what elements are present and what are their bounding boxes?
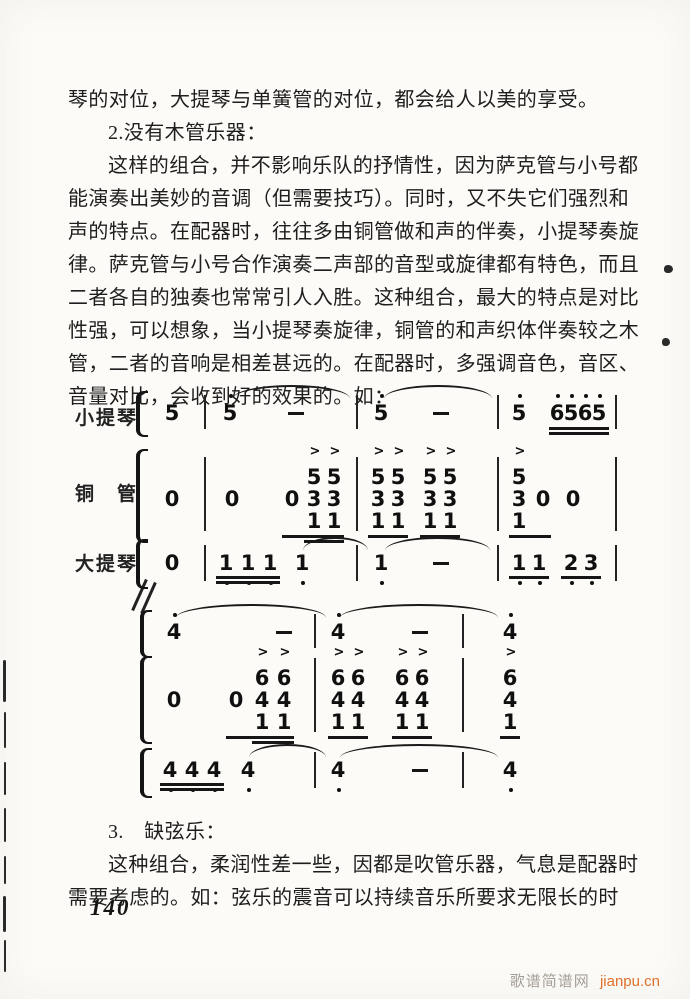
slur bbox=[176, 604, 326, 619]
note-digit: 0 bbox=[164, 487, 180, 511]
slur bbox=[340, 744, 498, 759]
beam-underline bbox=[549, 427, 609, 430]
note-digit: 1 bbox=[350, 710, 366, 734]
note-digit: 5 bbox=[370, 465, 386, 489]
note-digit: 4 bbox=[166, 620, 182, 644]
watermark-url: jianpu.cn bbox=[600, 973, 660, 990]
text-line: 性强，可以想象，当小提琴奏旋律，铜管的和声织体伴奏较之木 bbox=[68, 315, 653, 348]
note-digit: 0 bbox=[284, 487, 300, 511]
note-digit: 1 bbox=[502, 710, 518, 734]
note-digit: 4 bbox=[206, 758, 222, 782]
note-digit: 6 bbox=[330, 666, 346, 690]
beam-underline bbox=[500, 736, 520, 739]
note-digit: 5 bbox=[442, 465, 458, 489]
barline bbox=[204, 457, 206, 531]
beam-underline bbox=[216, 576, 280, 579]
note-digit: 1 bbox=[373, 551, 389, 575]
note-digit: 3 bbox=[583, 551, 599, 575]
score-system: 44400641>641>641>641>641>641>641>444444 bbox=[0, 598, 690, 813]
dash-note bbox=[412, 769, 428, 772]
octave-dot-below bbox=[590, 581, 594, 585]
note-digit: 4 bbox=[502, 758, 518, 782]
slur bbox=[340, 604, 498, 619]
barline bbox=[497, 545, 499, 581]
note-digit: 4 bbox=[330, 758, 346, 782]
dash-note bbox=[276, 631, 292, 634]
note-digit: 1 bbox=[442, 509, 458, 533]
note-digit: 4 bbox=[240, 758, 256, 782]
accent-mark: > bbox=[332, 646, 346, 660]
text-line: 琴的对位，大提琴与单簧管的对位，都会给人以美的享受。 bbox=[68, 84, 653, 117]
barline bbox=[615, 457, 617, 531]
binding-mark bbox=[4, 762, 6, 795]
octave-dot-above bbox=[173, 613, 177, 617]
octave-dot-below bbox=[247, 788, 251, 792]
text-line: 二者各自的独奏也常常引人入胜。这种组合，最大的特点是对比 bbox=[68, 282, 653, 315]
note-digit: 6 bbox=[254, 666, 270, 690]
text-line: 2.没有木管乐器： bbox=[68, 117, 653, 150]
note-digit: 4 bbox=[350, 688, 366, 712]
ink-speck bbox=[664, 265, 673, 273]
beam-underline bbox=[160, 783, 224, 786]
octave-dot-below bbox=[538, 581, 542, 585]
dash-note bbox=[433, 562, 449, 565]
text-line: 音量对比，会收到好的效果的。如： bbox=[68, 381, 653, 414]
stave-bracket bbox=[140, 610, 152, 658]
instrument-label: 大提琴 bbox=[75, 549, 138, 576]
note-digit: 1 bbox=[240, 551, 256, 575]
text-line: 这样的组合，并不影响乐队的抒情性，因为萨克管与小号都 bbox=[68, 150, 653, 183]
octave-dot-below bbox=[509, 788, 513, 792]
note-digit: 1 bbox=[218, 551, 234, 575]
note-digit: 3 bbox=[511, 487, 527, 511]
barline bbox=[356, 457, 358, 531]
octave-dot-below bbox=[247, 581, 251, 585]
accent-mark: > bbox=[416, 646, 430, 660]
stave-bracket bbox=[136, 449, 148, 543]
note-digit: 5 bbox=[511, 465, 527, 489]
binding-mark bbox=[4, 856, 6, 884]
beam-underline bbox=[304, 540, 344, 543]
note-digit: 0 bbox=[224, 487, 240, 511]
octave-dot-above bbox=[337, 613, 341, 617]
barline bbox=[204, 545, 206, 581]
accent-mark: > bbox=[396, 646, 410, 660]
text-line: 管，二者的音响是相差甚远的。在配器时，多强调音色，音区、 bbox=[68, 348, 653, 381]
note-digit: 4 bbox=[502, 620, 518, 644]
octave-dot-below bbox=[380, 581, 384, 585]
octave-dot-below bbox=[518, 581, 522, 585]
note-digit: 4 bbox=[276, 688, 292, 712]
binding-mark bbox=[4, 808, 6, 842]
watermark-site-name: 歌谱简谱网 bbox=[510, 973, 590, 990]
octave-dot-above bbox=[509, 613, 513, 617]
note-digit: 6 bbox=[276, 666, 292, 690]
note-digit: 1 bbox=[422, 509, 438, 533]
beam-underline bbox=[282, 535, 344, 538]
accent-mark: > bbox=[513, 445, 527, 459]
note-digit: 3 bbox=[390, 487, 406, 511]
note-digit: 3 bbox=[442, 487, 458, 511]
text-line: 3. 缺弦乐： bbox=[68, 816, 653, 849]
octave-dot-below bbox=[213, 788, 217, 792]
note-digit: 0 bbox=[166, 688, 182, 712]
note-digit: 5 bbox=[326, 465, 342, 489]
beam-underline bbox=[368, 535, 408, 538]
note-digit: 1 bbox=[414, 710, 430, 734]
dash-note bbox=[412, 631, 428, 634]
note-digit: 6 bbox=[394, 666, 410, 690]
note-digit: 6 bbox=[350, 666, 366, 690]
text-line: 能演奏出美妙的音调（但需要技巧）。同时，又不失它们强烈和 bbox=[68, 183, 653, 216]
beam-underline bbox=[160, 788, 224, 791]
system-continuation-mark bbox=[138, 578, 168, 618]
barline bbox=[314, 658, 316, 732]
binding-mark bbox=[3, 660, 6, 702]
text-line: 律。萨克管与小号合作演奏二声部的音型或旋律都有特色，而且 bbox=[68, 249, 653, 282]
note-digit: 4 bbox=[394, 688, 410, 712]
accent-mark: > bbox=[444, 445, 458, 459]
note-digit: 1 bbox=[390, 509, 406, 533]
note-digit: 1 bbox=[511, 551, 527, 575]
barline bbox=[462, 752, 464, 788]
note-digit: 3 bbox=[326, 487, 342, 511]
paragraphs-top: 琴的对位，大提琴与单簧管的对位，都会给人以美的享受。2.没有木管乐器：这样的组合… bbox=[68, 84, 653, 414]
binding-mark bbox=[4, 712, 6, 748]
barline bbox=[462, 614, 464, 648]
accent-mark: > bbox=[372, 445, 386, 459]
note-digit: 1 bbox=[262, 551, 278, 575]
note-digit: 1 bbox=[294, 551, 310, 575]
slur bbox=[385, 537, 490, 552]
slur bbox=[303, 537, 368, 552]
octave-dot-below bbox=[269, 581, 273, 585]
stave-bracket bbox=[140, 748, 152, 798]
barline bbox=[314, 752, 316, 788]
octave-dot-below bbox=[191, 788, 195, 792]
stave-bracket bbox=[140, 656, 152, 744]
note-digit: 3 bbox=[370, 487, 386, 511]
barline bbox=[615, 545, 617, 581]
note-digit: 6 bbox=[414, 666, 430, 690]
note-digit: 1 bbox=[254, 710, 270, 734]
note-digit: 6 bbox=[502, 666, 518, 690]
barline bbox=[314, 614, 316, 648]
beam-underline bbox=[561, 576, 601, 579]
binding-mark bbox=[4, 940, 6, 972]
note-digit: 4 bbox=[330, 620, 346, 644]
beam-underline bbox=[216, 581, 280, 584]
accent-mark: > bbox=[308, 445, 322, 459]
note-digit: 1 bbox=[394, 710, 410, 734]
note-digit: 1 bbox=[370, 509, 386, 533]
octave-dot-below bbox=[337, 788, 341, 792]
beam-underline bbox=[252, 741, 294, 744]
note-digit: 1 bbox=[330, 710, 346, 734]
note-digit: 1 bbox=[511, 509, 527, 533]
book-page: 琴的对位，大提琴与单簧管的对位，都会给人以美的享受。2.没有木管乐器：这样的组合… bbox=[0, 0, 690, 999]
note-digit: 4 bbox=[330, 688, 346, 712]
accent-mark: > bbox=[352, 646, 366, 660]
accent-mark: > bbox=[256, 646, 270, 660]
beam-underline bbox=[420, 535, 460, 538]
beam-underline bbox=[392, 736, 432, 739]
barline bbox=[356, 545, 358, 581]
beam-underline bbox=[549, 432, 609, 435]
beam-underline bbox=[226, 736, 294, 739]
instrument-label: 铜 管 bbox=[75, 479, 138, 506]
note-digit: 2 bbox=[563, 551, 579, 575]
octave-dot-below bbox=[570, 581, 574, 585]
beam-underline bbox=[328, 736, 368, 739]
note-digit: 1 bbox=[306, 509, 322, 533]
text-line: 这种组合，柔润性差一些，因都是吹管乐器，气息是配器时 bbox=[68, 849, 653, 882]
note-digit: 3 bbox=[306, 487, 322, 511]
note-digit: 4 bbox=[414, 688, 430, 712]
note-digit: 4 bbox=[502, 688, 518, 712]
note-digit: 4 bbox=[162, 758, 178, 782]
note-digit: 1 bbox=[326, 509, 342, 533]
barline bbox=[497, 457, 499, 531]
stave-bracket bbox=[136, 539, 148, 589]
note-digit: 4 bbox=[184, 758, 200, 782]
beam-underline bbox=[509, 576, 549, 579]
slur bbox=[249, 744, 326, 759]
note-digit: 1 bbox=[531, 551, 547, 575]
note-digit: 0 bbox=[228, 688, 244, 712]
accent-mark: > bbox=[392, 445, 406, 459]
watermark: 歌谱简谱网 jianpu.cn bbox=[510, 970, 660, 991]
score-system: 小提琴55556565铜 管000531>531>531>531>531>531… bbox=[0, 393, 690, 593]
text-line: 声的特点。在配器时，往往多由铜管做和声的伴奏，小提琴奏旋 bbox=[68, 216, 653, 249]
note-digit: 1 bbox=[276, 710, 292, 734]
note-digit: 5 bbox=[306, 465, 322, 489]
note-digit: 4 bbox=[254, 688, 270, 712]
accent-mark: > bbox=[328, 445, 342, 459]
note-digit: 0 bbox=[164, 551, 180, 575]
ink-speck bbox=[662, 338, 670, 346]
note-digit: 0 bbox=[535, 487, 551, 511]
note-digit: 3 bbox=[422, 487, 438, 511]
octave-dot-below bbox=[169, 788, 173, 792]
octave-dot-below bbox=[301, 581, 305, 585]
accent-mark: > bbox=[424, 445, 438, 459]
text-line: 需要考虑的。如：弦乐的震音可以持续音乐所要求无限长的时 bbox=[68, 882, 653, 915]
binding-mark bbox=[3, 896, 6, 932]
note-digit: 0 bbox=[565, 487, 581, 511]
note-digit: 5 bbox=[390, 465, 406, 489]
octave-dot-below bbox=[225, 581, 229, 585]
accent-mark: > bbox=[504, 646, 518, 660]
barline bbox=[462, 658, 464, 732]
accent-mark: > bbox=[278, 646, 292, 660]
note-digit: 5 bbox=[422, 465, 438, 489]
paragraphs-bottom: 3. 缺弦乐：这种组合，柔润性差一些，因都是吹管乐器，气息是配器时需要考虑的。如… bbox=[68, 816, 653, 915]
beam-underline bbox=[509, 535, 551, 538]
page-number: 140 bbox=[90, 895, 131, 921]
